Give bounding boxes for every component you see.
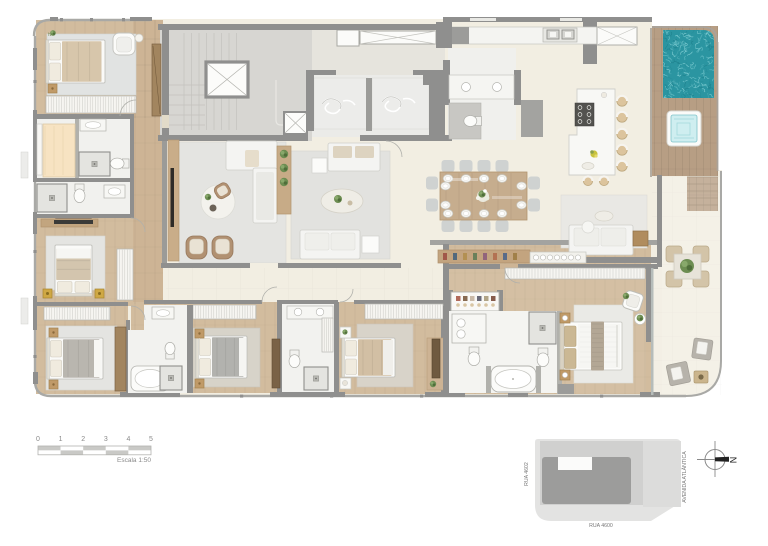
svg-text:1: 1 — [59, 436, 63, 443]
svg-text:AVENIDA ATLÂNTICA: AVENIDA ATLÂNTICA — [681, 451, 688, 503]
svg-text:5: 5 — [149, 436, 153, 443]
svg-text:4: 4 — [126, 436, 130, 443]
svg-text:0: 0 — [36, 436, 40, 443]
svg-text:Escala 1:50: Escala 1:50 — [117, 457, 151, 464]
svg-text:3: 3 — [104, 436, 108, 443]
svg-text:RUA 4602: RUA 4602 — [524, 462, 530, 486]
svg-text:2: 2 — [81, 436, 85, 443]
svg-text:RUA 4600: RUA 4600 — [589, 523, 613, 529]
svg-text:N: N — [728, 457, 738, 464]
